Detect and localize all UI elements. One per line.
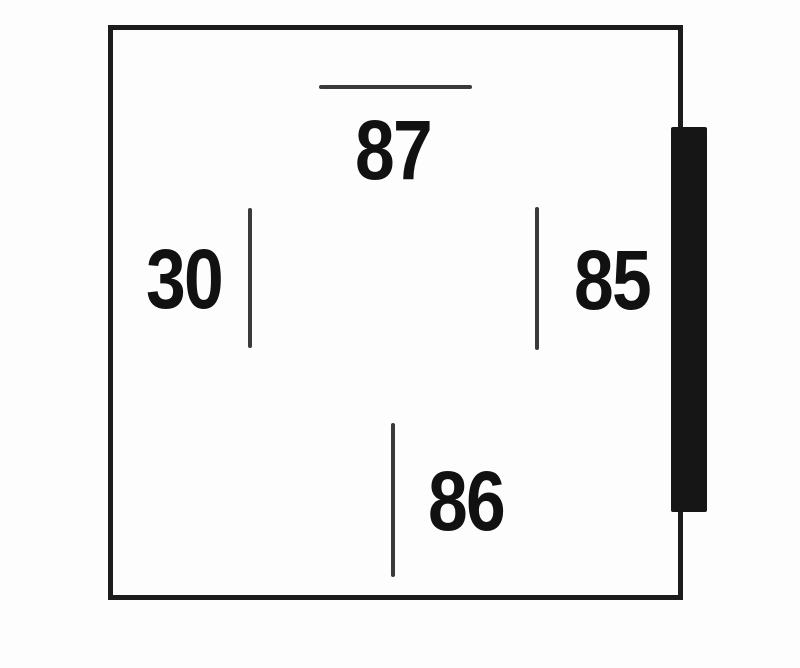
relay-pin-diagram: 87 30 85 86 bbox=[0, 0, 800, 668]
pin-86-terminal-line bbox=[391, 423, 395, 577]
pin-85-terminal-line bbox=[535, 207, 539, 350]
pin-85-label: 85 bbox=[574, 238, 650, 322]
pin-30-terminal-line bbox=[248, 208, 252, 348]
mounting-tab bbox=[671, 127, 707, 512]
pin-87-terminal-line bbox=[319, 85, 472, 89]
pin-30-label: 30 bbox=[146, 237, 222, 321]
pin-87-label: 87 bbox=[355, 108, 431, 192]
pin-86-label: 86 bbox=[428, 459, 504, 543]
